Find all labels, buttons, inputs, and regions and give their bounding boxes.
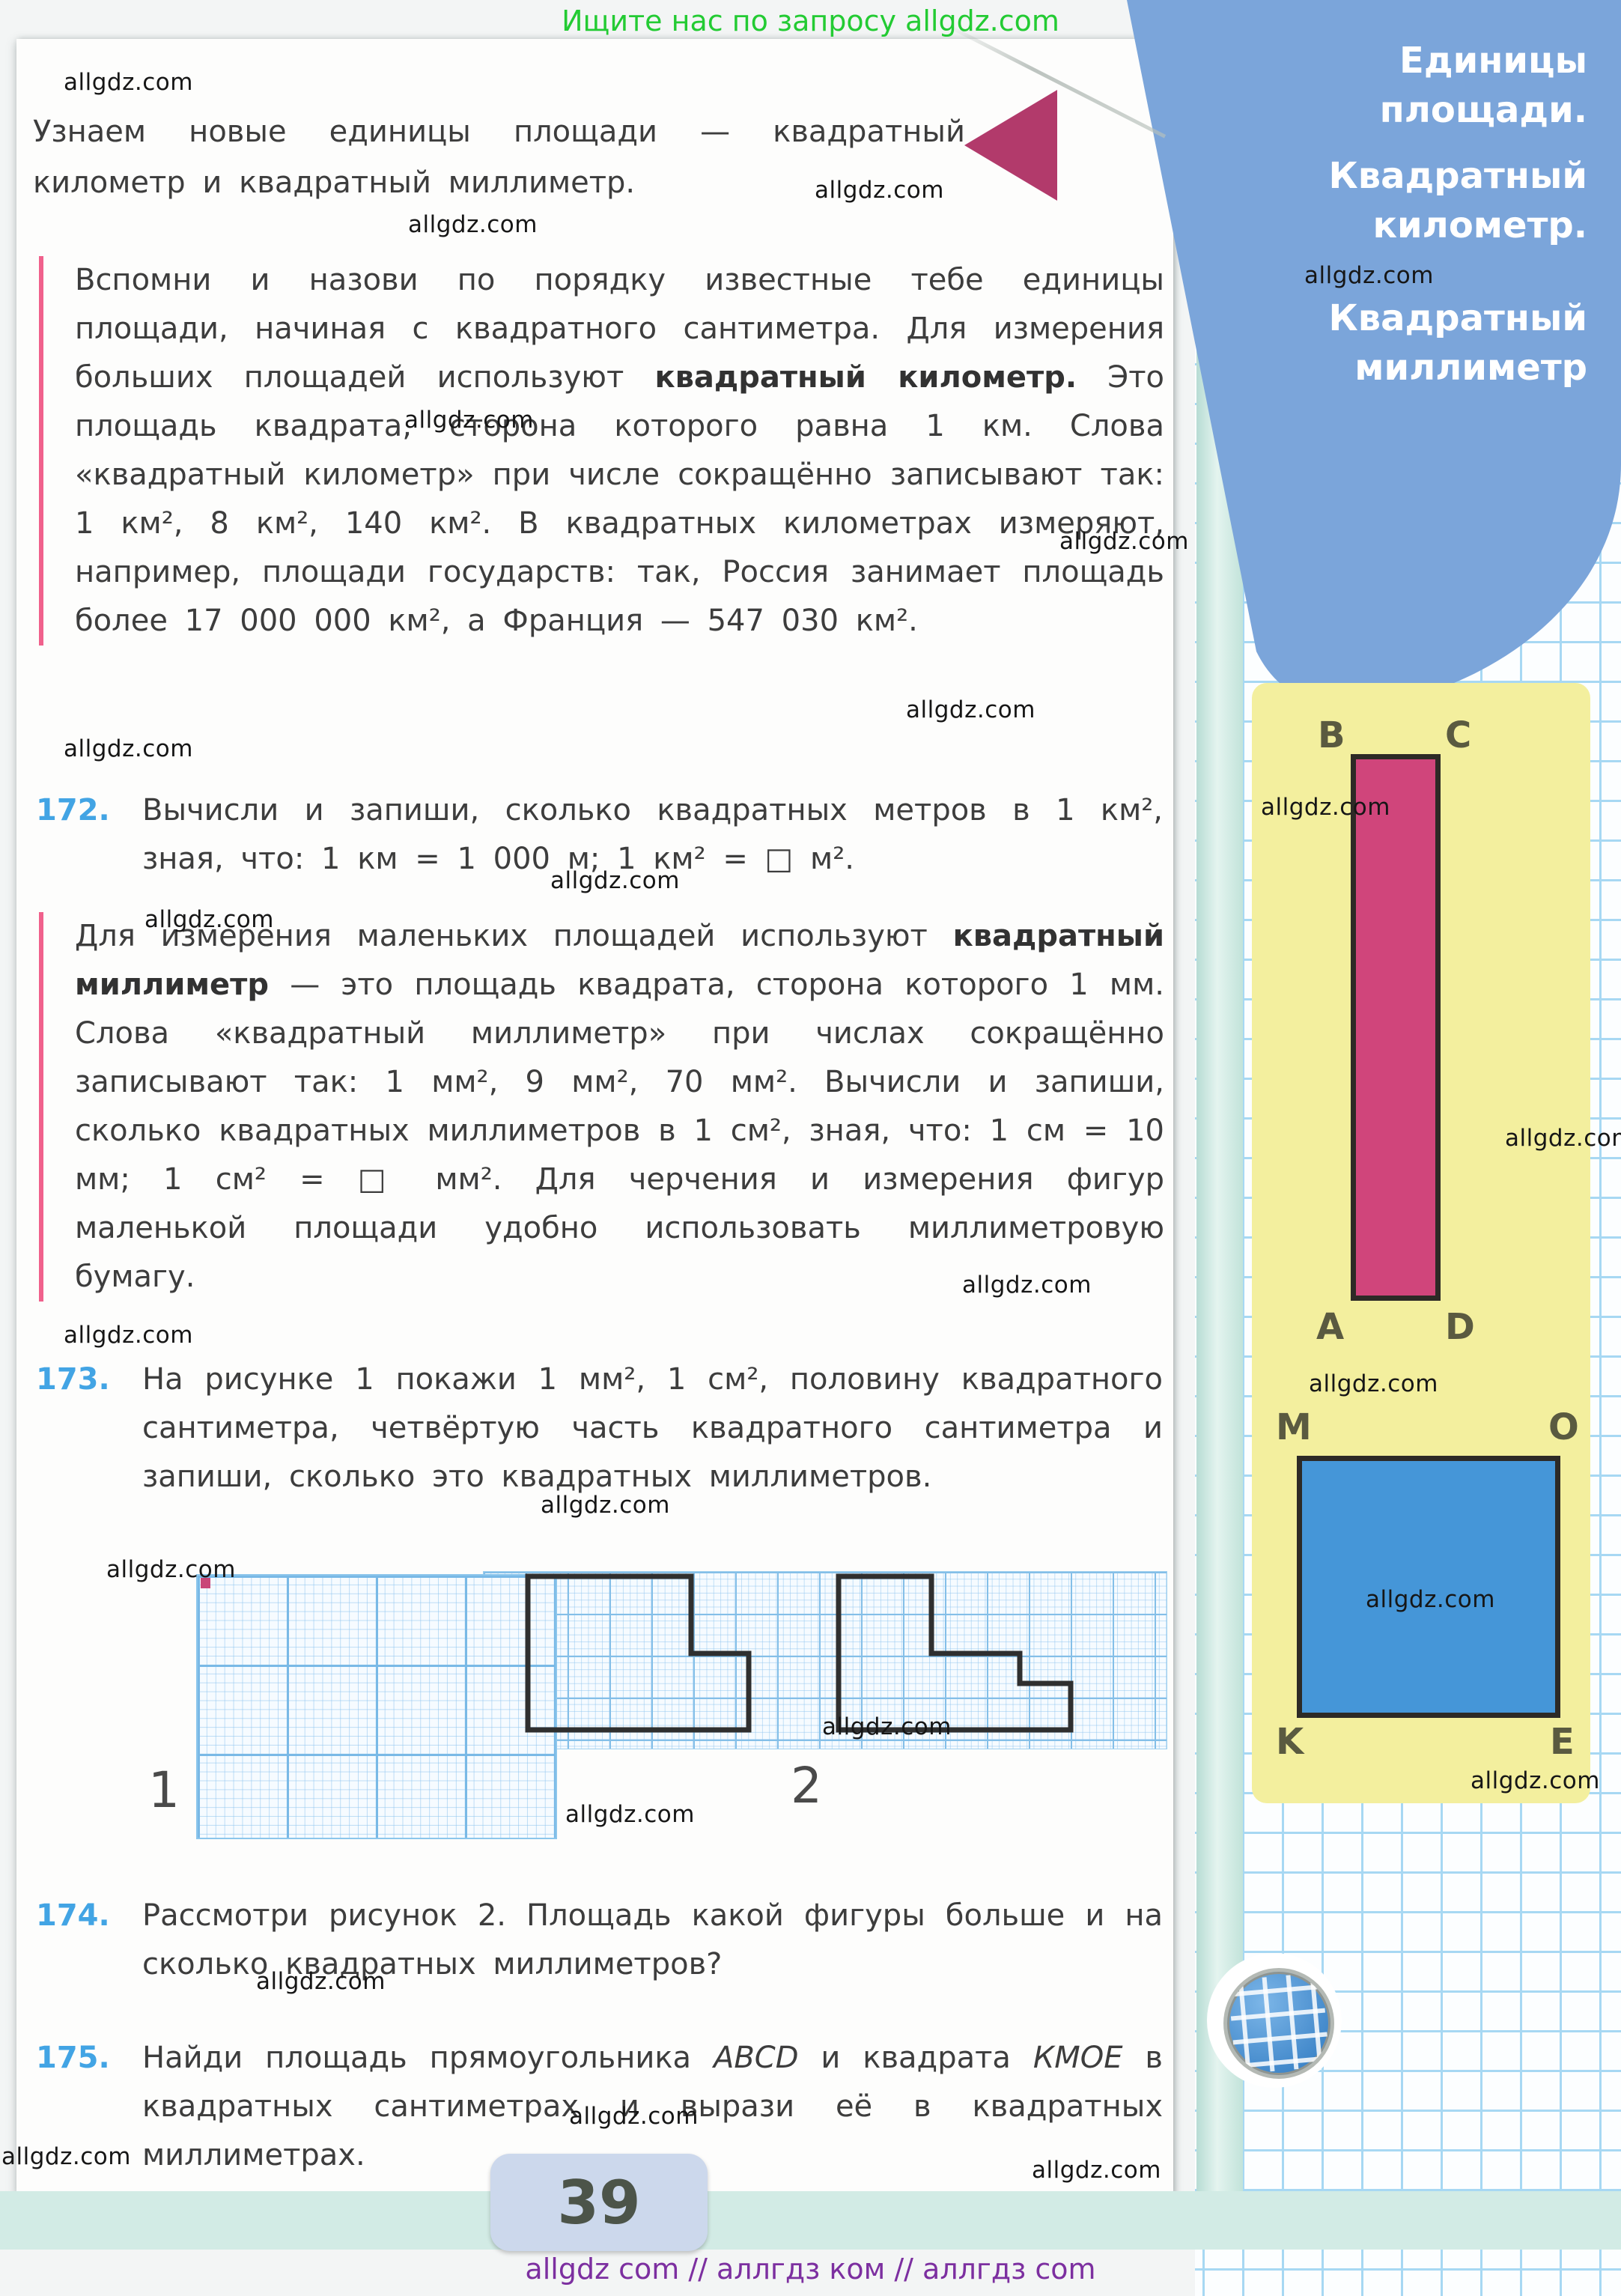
task-173: 173. На рисунке 1 покажи 1 мм², 1 см², п… xyxy=(36,1355,1163,1501)
stepped-shape-2 xyxy=(839,1576,1071,1730)
geometry-panel: B C A D M O K E xyxy=(1252,683,1590,1803)
watermark: allgdz.com xyxy=(1,2143,131,2170)
watermark: allgdz.com xyxy=(550,867,680,894)
grid-badge-icon xyxy=(1223,1968,1334,2079)
sidebar-title-line: Единицы xyxy=(1153,36,1587,85)
square-corner-label-m: M xyxy=(1276,1406,1312,1448)
sidebar-title-line: площади. xyxy=(1153,85,1587,135)
rect-corner-label-d: D xyxy=(1445,1306,1475,1348)
info-block-square-kilometer: Вспомни и назови по порядку известные те… xyxy=(39,256,1164,646)
grid-badge-lines xyxy=(1228,1972,1330,2075)
rect-corner-label-b: B xyxy=(1318,714,1345,756)
watermark: allgdz.com xyxy=(815,177,944,204)
watermark: allgdz.com xyxy=(106,1556,236,1583)
stepped-shape-1 xyxy=(528,1576,749,1730)
watermark: allgdz.com xyxy=(1261,794,1390,821)
watermark: allgdz.com xyxy=(64,69,193,96)
watermark: allgdz.com xyxy=(822,1713,952,1740)
sidebar-title-line: миллиметр xyxy=(1153,343,1587,392)
rectangle-abcd xyxy=(1351,754,1441,1301)
rect-corner-label-c: C xyxy=(1445,714,1471,756)
info-text: — это площадь квадрата, сторона которого… xyxy=(75,968,1164,1294)
watermark: allgdz.com xyxy=(1309,1370,1438,1397)
figure-name-abcd: ABCD xyxy=(714,2041,799,2075)
sidebar-title-line: километр. xyxy=(1153,201,1587,250)
info-text: Это площадь квадрата, сторона которого р… xyxy=(75,360,1164,638)
watermark: allgdz.com xyxy=(1032,2157,1161,2184)
watermark: allgdz.com xyxy=(962,1272,1092,1299)
rect-corner-label-a: A xyxy=(1316,1306,1344,1348)
watermark: allgdz.com xyxy=(256,1968,386,1995)
task-text: На рисунке 1 покажи 1 мм², 1 см², полови… xyxy=(142,1355,1163,1501)
watermark: allgdz.com xyxy=(404,407,534,434)
footer-links: allgdz com // аллгдз ком // аллгдз com xyxy=(0,2253,1621,2286)
square-corner-label-o: O xyxy=(1548,1406,1579,1448)
figure-2-shapes xyxy=(449,1558,1183,1767)
watermark: allgdz.com xyxy=(541,1492,670,1519)
watermark: allgdz.com xyxy=(1366,1586,1495,1613)
bottom-band xyxy=(0,2191,1621,2250)
task-text: Найди площадь прямоугольника xyxy=(142,2041,714,2075)
task-number: 174. xyxy=(36,1892,110,1940)
info-bold-term: квадратный километр. xyxy=(654,360,1077,395)
square-corner-label-k: K xyxy=(1276,1721,1304,1763)
square-corner-label-e: E xyxy=(1550,1721,1575,1763)
watermark: allgdz.com xyxy=(408,211,538,238)
sidebar-title-line: Квадратный xyxy=(1153,151,1587,201)
task-text: и квадрата xyxy=(799,2041,1033,2075)
lesson-arrow-icon xyxy=(964,90,1057,201)
promo-banner: Ищите нас по запросу allgdz.com xyxy=(0,4,1621,37)
watermark: allgdz.com xyxy=(906,696,1035,723)
task-174: 174. Рассмотри рисунок 2. Площадь какой … xyxy=(36,1892,1163,1989)
figure-name-kmoe: КМОЕ xyxy=(1033,2041,1123,2075)
watermark: allgdz.com xyxy=(145,906,274,933)
sidebar-title: Единицы площади. Квадратный километр. Кв… xyxy=(1153,36,1587,392)
info-block-square-millimeter: Для измерения маленьких площадей использ… xyxy=(39,912,1164,1302)
task-number: 172. xyxy=(36,786,110,835)
watermark: allgdz.com xyxy=(565,1801,695,1828)
watermark: allgdz.com xyxy=(64,1322,193,1349)
watermark: allgdz.com xyxy=(1471,1767,1600,1794)
task-number: 175. xyxy=(36,2034,110,2083)
watermark: allgdz.com xyxy=(1304,262,1434,289)
sidebar-title-line: Квадратный xyxy=(1153,294,1587,343)
task-number: 173. xyxy=(36,1355,110,1404)
watermark: allgdz.com xyxy=(569,2103,699,2130)
page-number-tab: 39 xyxy=(490,2154,708,2251)
figure-1-label: 1 xyxy=(148,1761,180,1819)
watermark: allgdz.com xyxy=(64,735,193,762)
watermark: allgdz.com xyxy=(1059,528,1189,555)
watermark: allgdz.com xyxy=(1505,1125,1621,1152)
